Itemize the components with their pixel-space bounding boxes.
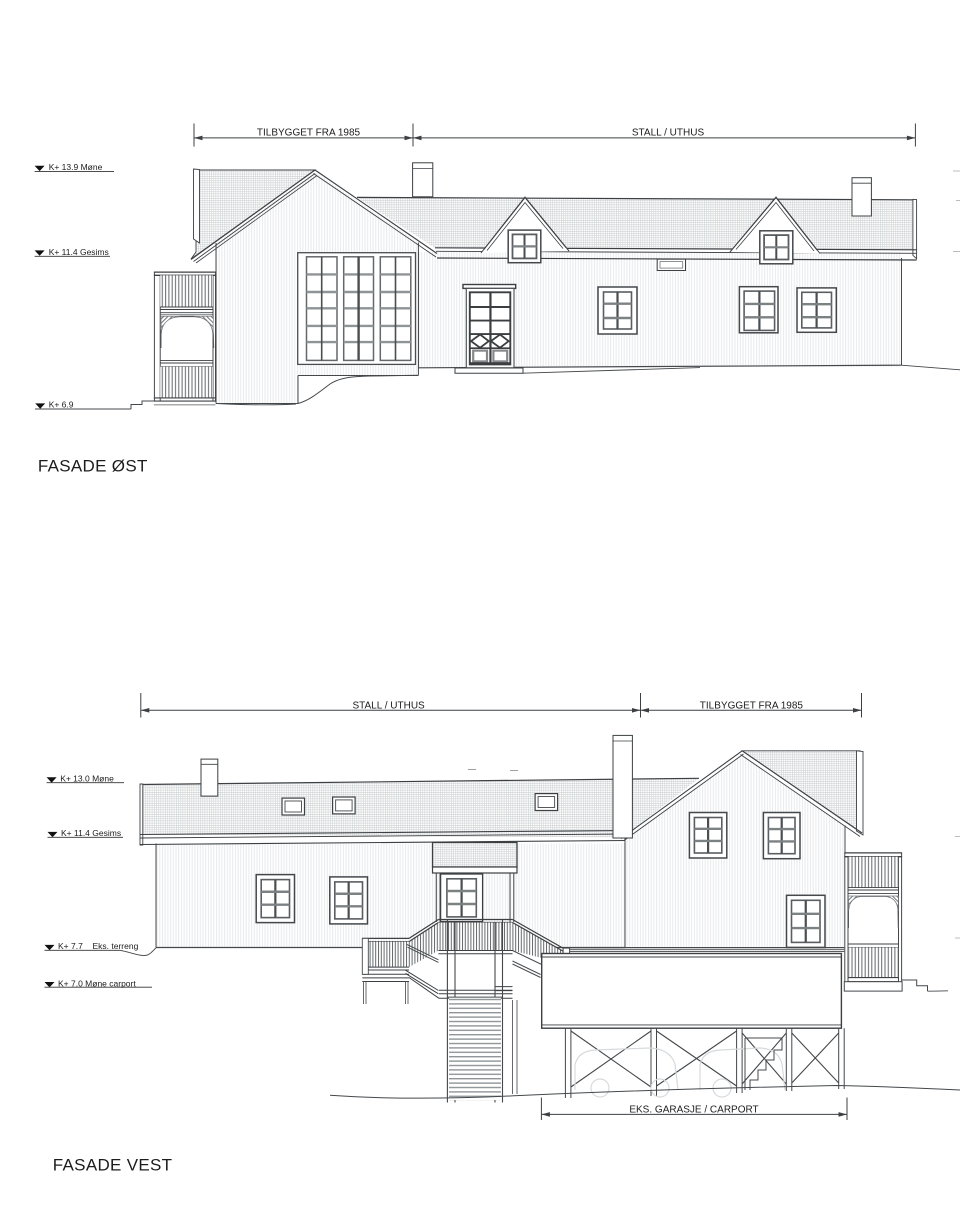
svg-text:FASADE VEST: FASADE VEST xyxy=(53,1156,173,1175)
svg-text:STALL / UTHUS: STALL / UTHUS xyxy=(352,701,425,712)
svg-text:TILBYGGET FRA 1985: TILBYGGET FRA 1985 xyxy=(700,701,804,712)
svg-text:TILBYGGET FRA 1985: TILBYGGET FRA 1985 xyxy=(257,127,361,138)
svg-text:FASADE ØST: FASADE ØST xyxy=(38,457,148,476)
svg-text:K+ 11.4 Gesims: K+ 11.4 Gesims xyxy=(49,247,109,257)
svg-text:STALL / UTHUS: STALL / UTHUS xyxy=(632,127,705,138)
svg-text:K+ 6.9: K+ 6.9 xyxy=(49,400,74,410)
svg-text:K+ 7.7: K+ 7.7 xyxy=(58,941,83,951)
svg-text:EKS. GARASJE / CARPORT: EKS. GARASJE / CARPORT xyxy=(629,1105,758,1116)
svg-text:K+ 13.9 Møne: K+ 13.9 Møne xyxy=(49,162,103,172)
svg-text:K+ 11.4 Gesims: K+ 11.4 Gesims xyxy=(61,828,121,838)
svg-text:K+ 13.0 Møne: K+ 13.0 Møne xyxy=(60,773,114,783)
svg-text:Eks. terreng: Eks. terreng xyxy=(93,941,139,951)
